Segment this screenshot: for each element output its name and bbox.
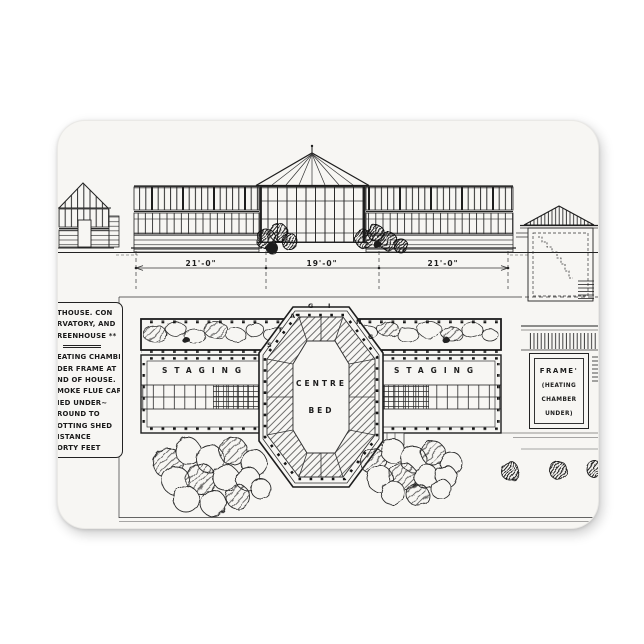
octagon-staging-letter: I [328, 302, 330, 310]
frame-box-label: UNDER) [530, 411, 588, 417]
staging-label-right: STAGING [378, 366, 496, 375]
centre-bed-label-line1: CENTRE [296, 379, 347, 388]
magnet-product: 21'-0" 19'-0" 21'-0" THOUSE. CON RVATORY… [57, 120, 599, 529]
note-divider [63, 345, 101, 348]
dimension-label-centre: 19'-0" [299, 259, 345, 268]
octagon-staging-letter: S [267, 341, 272, 349]
note-title-line: RVATORY, AND [57, 319, 120, 330]
note-body-line: EATING CHAMBER [57, 352, 120, 363]
note-block: THOUSE. CON RVATORY, AND REENHOUSE ** EA… [57, 302, 123, 458]
octagon-staging-letter: G [308, 302, 313, 310]
left-greenhouse-elevation [58, 183, 119, 248]
note-body-line: ND OF HOUSE. [57, 375, 120, 386]
tree-cluster-left [153, 437, 271, 516]
frame-box-label: CHAMBER [530, 397, 588, 403]
architectural-drawing-linework [58, 121, 598, 528]
note-body-line: ORTY FEET [57, 443, 120, 454]
dimension-label-right: 21'-0" [420, 259, 466, 268]
note-body-line: OTTING SHED [57, 421, 120, 432]
note-body-line: DER FRAME AT [57, 364, 120, 375]
small-shrubs-row [501, 461, 598, 481]
potting-shed-section [516, 206, 598, 301]
dimension-line [136, 251, 508, 289]
note-title-line: REENHOUSE ** [57, 331, 120, 342]
note-body-line: IED UNDER~ [57, 398, 120, 409]
octagon-staging-letter: T [278, 326, 282, 334]
note-body-line: MOKE FLUE CAR [57, 386, 120, 397]
left-wing-elevation [131, 187, 262, 252]
note-title-line: THOUSE. CON [57, 308, 120, 319]
dimension-label-left: 21'-0" [178, 259, 224, 268]
tree-cluster-right [360, 439, 462, 506]
frame-box-label: (HEATING [530, 383, 588, 389]
octagon-staging-letter: A [290, 312, 295, 320]
note-body-line: ROUND TO [57, 409, 120, 420]
architectural-drawing: 21'-0" 19'-0" 21'-0" THOUSE. CON RVATORY… [58, 121, 598, 528]
centre-bed-label-line2: BED [296, 406, 347, 415]
frame-box: FRAME' (HEATING CHAMBER UNDER) [529, 353, 589, 429]
octagon-staging-letter: G [368, 333, 373, 341]
note-body-line: ISTANCE [57, 432, 120, 443]
product-photo-page: 21'-0" 19'-0" 21'-0" THOUSE. CON RVATORY… [0, 0, 644, 644]
frame-box-label: FRAME' [530, 367, 588, 375]
octagon-staging-letter: N [356, 318, 361, 326]
staging-label-left: STAGING [146, 366, 264, 375]
